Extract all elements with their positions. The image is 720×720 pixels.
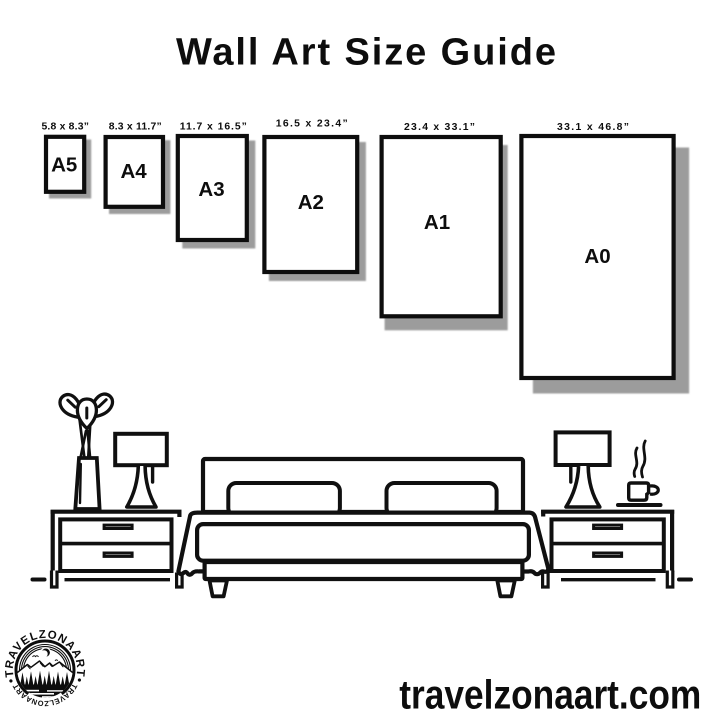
svg-text:11.7 x 16.5”: 11.7 x 16.5” [180, 122, 247, 133]
svg-text:33.1 x 46.8”: 33.1 x 46.8” [557, 122, 629, 133]
svg-text:A4: A4 [120, 160, 147, 183]
svg-text:23.4 x 33.1”: 23.4 x 33.1” [404, 122, 475, 133]
svg-text:A1: A1 [424, 211, 450, 234]
svg-text:16.5 x 23.4”: 16.5 x 23.4” [276, 119, 348, 130]
svg-text:8.3 x 11.7”: 8.3 x 11.7” [109, 122, 162, 133]
svg-text:A5: A5 [51, 153, 77, 176]
svg-text:A0: A0 [584, 245, 610, 268]
svg-text:A2: A2 [298, 191, 324, 214]
svg-text:5.8 x 8.3”: 5.8 x 8.3” [41, 122, 89, 133]
svg-text:A3: A3 [198, 178, 224, 201]
svg-text:Wall Art Size Guide: Wall Art Size Guide [176, 32, 556, 74]
svg-text:travelzonaart.com: travelzonaart.com [399, 672, 701, 718]
